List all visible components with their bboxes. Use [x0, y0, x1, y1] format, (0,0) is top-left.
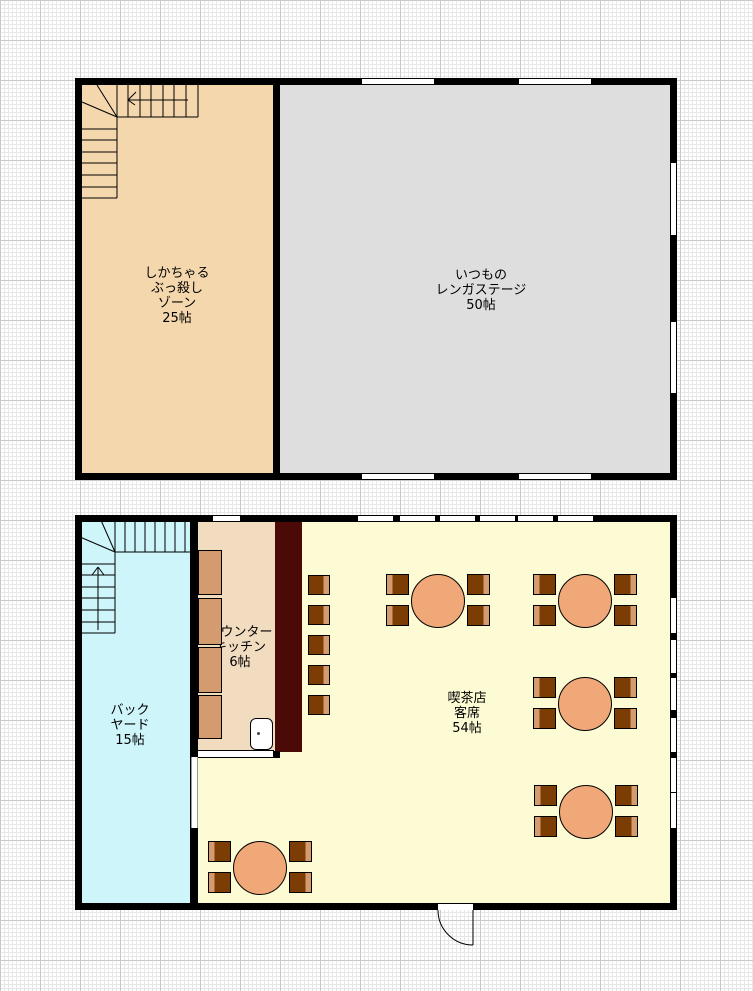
window [518, 516, 553, 521]
round-table [233, 841, 287, 895]
window [671, 758, 676, 792]
kitchen-counter-unit [198, 695, 222, 739]
room-kitchen-label: カウンター キッチン 6帖 [160, 625, 320, 670]
chair [289, 872, 312, 893]
chair [615, 816, 638, 837]
chair [533, 708, 556, 729]
window [671, 322, 676, 393]
entrance-door-swing [438, 910, 473, 945]
entrance-door-opening [438, 904, 473, 910]
chair [208, 841, 231, 862]
chair [534, 785, 557, 806]
window [671, 793, 676, 828]
kitchen-counter-unit [198, 598, 222, 645]
chair [208, 872, 231, 893]
room-zone-label: しかちゃる ぶっ殺し ゾーン 25帖 [97, 266, 257, 326]
round-table [411, 574, 465, 628]
chair [615, 785, 638, 806]
window [480, 516, 515, 521]
chair [534, 816, 557, 837]
window [671, 163, 676, 235]
window [671, 718, 676, 752]
chair [614, 574, 637, 595]
chair [289, 841, 312, 862]
chair [533, 605, 556, 626]
table-group [208, 840, 312, 896]
chair [386, 574, 409, 595]
chair [386, 605, 409, 626]
chair [467, 605, 490, 626]
room-cafe-label: 喫茶店 客席 54帖 [387, 691, 547, 736]
kitchen-pass [198, 750, 274, 758]
window [362, 474, 434, 479]
counter-bar-end [273, 751, 280, 758]
counter-seat [308, 695, 330, 715]
counter-seat [308, 605, 330, 625]
window [400, 516, 435, 521]
chair [533, 677, 556, 698]
window [519, 474, 591, 479]
table-group [386, 573, 490, 629]
room-stage-label: いつもの レンガステージ 50帖 [401, 268, 561, 313]
chair [533, 574, 556, 595]
counter-seat [308, 635, 330, 655]
window [671, 640, 676, 673]
round-table [558, 574, 612, 628]
chair [614, 605, 637, 626]
room-backyard-label: バック ヤード 15帖 [50, 703, 210, 748]
window [358, 516, 393, 521]
door-handle-icon [257, 732, 260, 735]
chair [467, 574, 490, 595]
chair [614, 677, 637, 698]
window [362, 79, 434, 84]
backyard-door [191, 757, 198, 828]
counter-seat [308, 575, 330, 595]
round-table [558, 677, 612, 731]
table-group [533, 676, 637, 732]
counter-seat [308, 665, 330, 685]
window [671, 598, 676, 633]
window [519, 79, 591, 84]
chair [614, 708, 637, 729]
floor-plan-canvas: しかちゃる ぶっ殺し ゾーン 25帖 いつもの レンガステージ 50帖 バック … [0, 0, 753, 991]
table-group [534, 784, 638, 840]
kitchen-counter-unit [198, 647, 222, 693]
table-group [533, 573, 637, 629]
window [558, 516, 593, 521]
window [440, 516, 475, 521]
round-table [559, 785, 613, 839]
window [671, 678, 676, 710]
kitchen-counter-unit [198, 550, 222, 595]
window [213, 516, 240, 521]
kitchen-door [250, 718, 273, 750]
